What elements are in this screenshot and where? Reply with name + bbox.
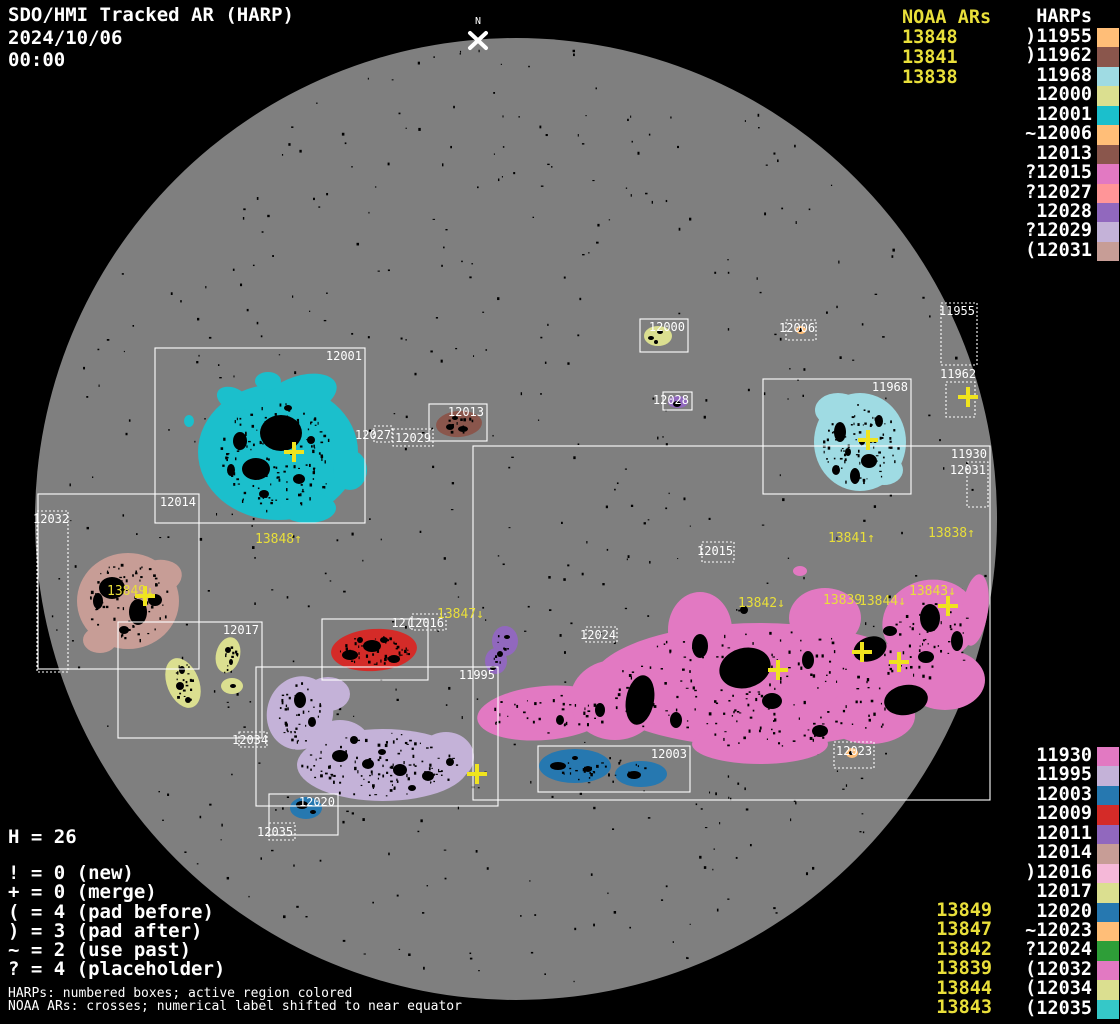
harp-item: ~12006	[1006, 124, 1092, 143]
harps-header: HARPs	[1006, 6, 1092, 27]
harp-box-label-12029: 12029	[395, 431, 431, 445]
legend-bottom-right-swatches	[1097, 747, 1119, 1019]
harp-item: 12013	[1006, 144, 1092, 163]
harp-color-swatch-12032	[1097, 961, 1119, 980]
harp-item: ?12027	[1006, 183, 1092, 202]
noaa-ar-item: 13849	[928, 901, 992, 920]
harp-color-swatch-12029	[1097, 222, 1119, 241]
harp-item: 11968	[1006, 66, 1092, 85]
harp-color-swatch-11955	[1097, 28, 1119, 47]
harp-box-label-11962: 11962	[940, 367, 976, 381]
flag-legend-line: ( = 4 (pad before)	[8, 903, 225, 922]
noaa-ar-item: 13838	[902, 68, 991, 88]
harp-box-label-12020: 12020	[299, 795, 335, 809]
plot-header: SDO/HMI Tracked AR (HARP)2024/10/0600:00	[8, 4, 294, 72]
noaa-ar-item: 13841	[902, 48, 991, 68]
noaa-disk-label-13848: 13848↑	[255, 532, 302, 547]
harp-item: 11930	[1010, 746, 1092, 765]
harp-color-swatch-11962	[1097, 47, 1119, 66]
harp-item: ?12015	[1006, 163, 1092, 182]
harp-item: )11955	[1006, 27, 1092, 46]
noaa-ars-list: 138481384113838	[902, 28, 991, 88]
noaa-disk-label-13843: 13843↓	[909, 584, 956, 599]
north-marker: N	[470, 16, 486, 48]
harp-item: 12014	[1010, 843, 1092, 862]
harp-color-swatch-12013	[1097, 145, 1119, 164]
harp-item: )11962	[1006, 46, 1092, 65]
harp-box-label-11955: 11955	[939, 304, 975, 318]
harp-box-12027: 12027	[355, 426, 392, 442]
harp-item: ~12023	[1010, 921, 1092, 940]
harp-box-label-12006: 12006	[779, 321, 815, 335]
harp-color-swatch-12017	[1097, 883, 1119, 902]
harp-box-12034: 12034	[232, 732, 268, 747]
harp-item: )12016	[1010, 863, 1092, 882]
harp-box-label-12015: 12015	[697, 544, 733, 558]
noaa-ar-item: 13848	[902, 28, 991, 48]
harp-color-swatch-11930	[1097, 747, 1119, 766]
harp-color-swatch-12024	[1097, 941, 1119, 960]
harp-box-12035: 12035	[257, 823, 295, 840]
noaa-ars-header: NOAA ARs	[902, 8, 991, 28]
harp-color-swatch-12028	[1097, 203, 1119, 222]
noaa-ar-item: 13847	[928, 920, 992, 939]
harp-count: H = 26	[8, 826, 77, 848]
flag-legend-line: ? = 4 (placeholder)	[8, 960, 225, 979]
harp-item: (12034	[1010, 979, 1092, 998]
harp-color-swatch-11968	[1097, 67, 1119, 86]
plot-footnote: HARPs: numbered boxes; active region col…	[8, 987, 462, 1013]
harp-item: ?12024	[1010, 940, 1092, 959]
noaa-ar-item: 13844	[928, 979, 992, 998]
harp-item: (12031	[1006, 241, 1092, 260]
harp-box-label-12028: 12028	[653, 393, 689, 407]
noaa-disk-label-13849: 13849↓	[107, 584, 154, 599]
harp-box-label-12034: 12034	[232, 733, 268, 747]
harp-box-label-12032: 12032	[33, 512, 69, 526]
harp-item: 12001	[1006, 105, 1092, 124]
harp-item: 12011	[1010, 824, 1092, 843]
harp-item: 12017	[1010, 882, 1092, 901]
harp-item: 11995	[1010, 765, 1092, 784]
harp-color-swatch-12011	[1097, 825, 1119, 844]
harp-item: 12003	[1010, 785, 1092, 804]
noaa-disk-label-13847: 13847↓	[437, 607, 484, 622]
harp-box-label-12024: 12024	[580, 628, 616, 642]
harp-box-12024: 12024	[580, 627, 617, 642]
harp-color-swatch-12023	[1097, 922, 1119, 941]
legend-top-right-harps: )11955)11962119681200012001~1200612013?1…	[1006, 27, 1092, 260]
noaa-ar-item: 13843	[928, 998, 992, 1017]
harp-color-swatch-12034	[1097, 980, 1119, 999]
harp-color-swatch-12035	[1097, 1000, 1119, 1019]
noaa-disk-label-13839: 13839	[823, 593, 862, 608]
noaa-disk-label-13838: 13838↑	[928, 526, 975, 541]
harp-box-label-12035: 12035	[257, 825, 293, 839]
harp-box-label-12014: 12014	[160, 495, 196, 509]
harp-item: 12028	[1006, 202, 1092, 221]
harp-box-label-12031: 12031	[950, 463, 986, 477]
harp-color-swatch-12014	[1097, 844, 1119, 863]
sdo-hmi-harp-screen: 1200112013120141201712000120281196811995…	[0, 0, 1120, 1024]
plot-date: 2024/10/06	[8, 27, 122, 49]
harp-box-label-11930: 11930	[951, 447, 987, 461]
noaa-disk-label-13842: 13842↓	[738, 596, 785, 611]
noaa-disk-label-13844: 13844↓	[859, 594, 906, 609]
harp-color-swatch-12006	[1097, 125, 1119, 144]
harp-color-swatch-12003	[1097, 786, 1119, 805]
harp-box-label-12003: 12003	[651, 747, 687, 761]
harp-color-swatch-12027	[1097, 184, 1119, 203]
harp-color-swatch-11995	[1097, 766, 1119, 785]
harp-box-label-11968: 11968	[872, 380, 908, 394]
plot-title: SDO/HMI Tracked AR (HARP)	[8, 4, 294, 26]
harp-box-label-12000: 12000	[649, 320, 685, 334]
flag-legend: ! = 0 (new)+ = 0 (merge)( = 4 (pad befor…	[8, 864, 225, 980]
legend-top-right-noaa: NOAA ARs 138481384113838	[902, 8, 991, 88]
noaa-ar-item: 13842	[928, 940, 992, 959]
harp-item: 12020	[1010, 902, 1092, 921]
harp-box-label-11995: 11995	[459, 668, 495, 682]
harp-box-label-12017: 12017	[223, 623, 259, 637]
harp-color-swatch-12000	[1097, 86, 1119, 105]
harp-item: (12035	[1010, 999, 1092, 1018]
solar-disk-circle	[35, 38, 997, 1000]
legend-top-right-swatches	[1097, 28, 1119, 261]
plot-time: 00:00	[8, 49, 65, 71]
harp-color-swatch-12001	[1097, 106, 1119, 125]
harp-item: (12032	[1010, 960, 1092, 979]
flag-legend-line: + = 0 (merge)	[8, 883, 225, 902]
harp-box-label-12001: 12001	[326, 349, 362, 363]
harp-item: ?12029	[1006, 221, 1092, 240]
harp-box-label-12013: 12013	[448, 405, 484, 419]
harp-item: 12000	[1006, 85, 1092, 104]
noaa-disk-label-13841: 13841↑	[828, 531, 875, 546]
harp-color-swatch-12015	[1097, 164, 1119, 183]
harp-box-label-12023: 12023	[836, 744, 872, 758]
legend-bottom-right-harps: 119301199512003120091201112014)120161201…	[1010, 746, 1092, 1018]
harp-color-swatch-12020	[1097, 903, 1119, 922]
noaa-ar-item: 13839	[928, 959, 992, 978]
harp-color-swatch-12009	[1097, 805, 1119, 824]
legend-bottom-right-noaa: 138491384713842138391384413843	[928, 901, 992, 1018]
harp-color-swatch-12031	[1097, 242, 1119, 261]
harp-item: 12009	[1010, 804, 1092, 823]
harp-box-label-12027: 12027	[355, 428, 391, 442]
footnote-line2: NOAA ARs: crosses; numerical label shift…	[8, 999, 462, 1014]
harp-color-swatch-12016	[1097, 864, 1119, 883]
harp-box-12029: 12029	[393, 429, 433, 446]
north-label: N	[475, 16, 481, 27]
